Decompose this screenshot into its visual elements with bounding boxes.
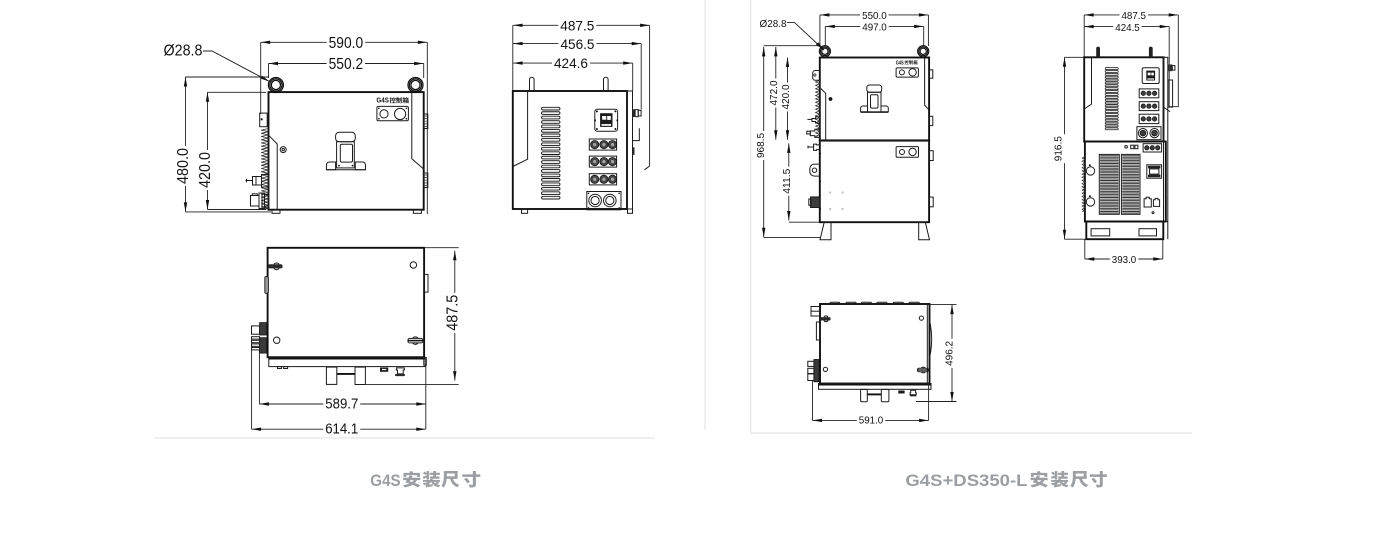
svg-text:Ø28.8: Ø28.8 bbox=[760, 18, 787, 30]
svg-text:590.0: 590.0 bbox=[329, 35, 364, 52]
svg-text:614.1: 614.1 bbox=[325, 421, 358, 437]
svg-text:480.0: 480.0 bbox=[175, 148, 192, 184]
svg-text:487.5: 487.5 bbox=[1121, 10, 1146, 22]
svg-text:G4S: G4S bbox=[376, 97, 389, 104]
svg-text:591.0: 591.0 bbox=[859, 415, 884, 427]
svg-text:472.0: 472.0 bbox=[768, 80, 780, 105]
svg-text:487.5: 487.5 bbox=[445, 295, 462, 331]
svg-text:424.6: 424.6 bbox=[554, 55, 588, 71]
svg-text:916.5: 916.5 bbox=[1053, 136, 1065, 161]
svg-text:589.7: 589.7 bbox=[325, 397, 358, 413]
svg-text:420.0: 420.0 bbox=[197, 152, 214, 188]
svg-text:G4S+DS350-L: G4S+DS350-L bbox=[905, 472, 1027, 490]
svg-text:456.5: 456.5 bbox=[561, 36, 595, 52]
svg-text:G4S: G4S bbox=[370, 472, 400, 490]
svg-text:411.5: 411.5 bbox=[781, 169, 793, 194]
svg-text:424.5: 424.5 bbox=[1115, 22, 1140, 34]
svg-text:G4S: G4S bbox=[896, 60, 904, 66]
svg-text:550.0: 550.0 bbox=[862, 10, 887, 22]
svg-text:393.0: 393.0 bbox=[1112, 254, 1137, 266]
svg-text:Ø28.8: Ø28.8 bbox=[164, 43, 203, 60]
svg-text:550.2: 550.2 bbox=[329, 56, 364, 73]
svg-text:968.5: 968.5 bbox=[755, 133, 767, 158]
svg-text:420.0: 420.0 bbox=[780, 84, 792, 109]
svg-text:497.0: 497.0 bbox=[862, 22, 887, 34]
svg-text:487.5: 487.5 bbox=[560, 17, 594, 33]
svg-text:496.2: 496.2 bbox=[943, 341, 955, 366]
